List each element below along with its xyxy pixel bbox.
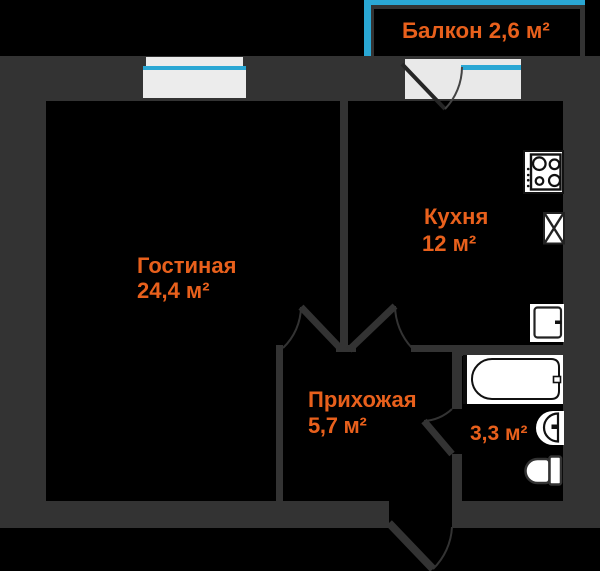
- svg-text:Прихожая: Прихожая: [308, 387, 417, 412]
- svg-text:Балкон 2,6 м²: Балкон 2,6 м²: [402, 18, 550, 43]
- svg-text:Кухня: Кухня: [424, 204, 488, 229]
- svg-text:5,7 м²: 5,7 м²: [308, 413, 367, 438]
- svg-text:24,4 м²: 24,4 м²: [137, 278, 210, 303]
- svg-text:3,3 м²: 3,3 м²: [470, 422, 528, 445]
- svg-text:Гостиная: Гостиная: [137, 253, 236, 278]
- svg-text:12 м²: 12 м²: [422, 231, 476, 256]
